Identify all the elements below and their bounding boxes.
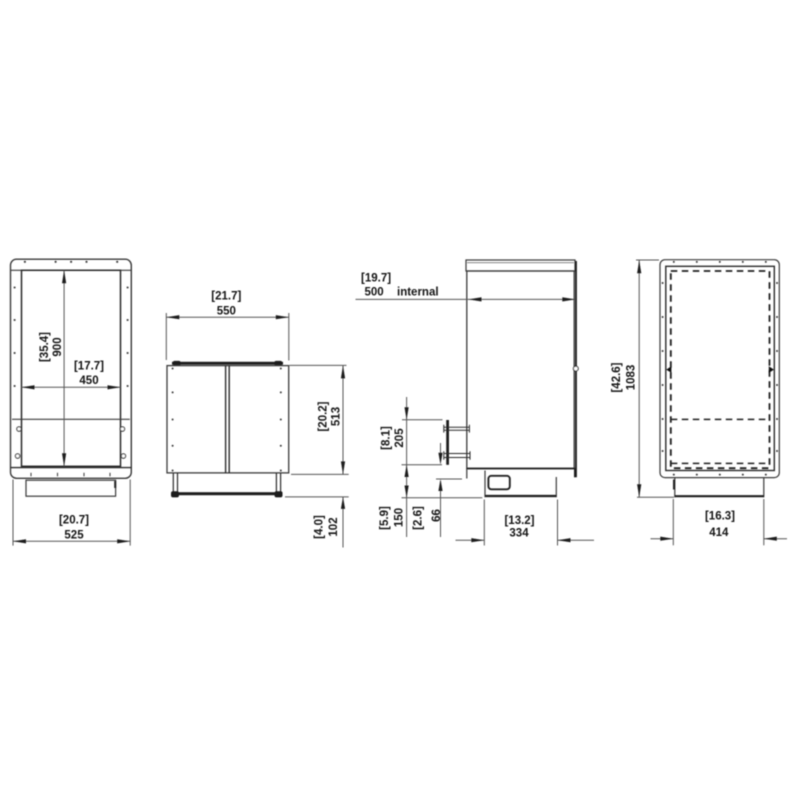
svg-text:[2.6]: [2.6] <box>412 506 424 530</box>
svg-text:[20.2]: [20.2] <box>318 401 330 431</box>
svg-text:900: 900 <box>52 337 64 356</box>
svg-text:66: 66 <box>431 509 443 522</box>
svg-text:[20.7]: [20.7] <box>59 515 89 527</box>
svg-text:[5.9]: [5.9] <box>379 506 391 530</box>
svg-text:[19.7]: [19.7] <box>361 273 391 285</box>
svg-text:450: 450 <box>79 375 98 387</box>
svg-text:334: 334 <box>509 528 529 540</box>
svg-text:205: 205 <box>394 428 406 448</box>
svg-text:150: 150 <box>393 508 405 527</box>
svg-text:[8.1]: [8.1] <box>381 426 393 450</box>
svg-text:513: 513 <box>331 407 343 426</box>
svg-text:[4.0]: [4.0] <box>314 515 326 539</box>
svg-text:internal: internal <box>397 287 439 299</box>
svg-text:[13.2]: [13.2] <box>504 515 534 527</box>
svg-text:525: 525 <box>64 530 84 542</box>
svg-text:[16.3]: [16.3] <box>705 511 735 523</box>
svg-text:[35.4]: [35.4] <box>39 332 51 362</box>
svg-text:102: 102 <box>328 517 340 536</box>
svg-text:[21.7]: [21.7] <box>211 291 241 303</box>
svg-text:500: 500 <box>365 287 384 299</box>
svg-text:[17.7]: [17.7] <box>74 361 104 373</box>
svg-text:1083: 1083 <box>626 365 638 391</box>
svg-text:550: 550 <box>217 306 236 318</box>
svg-text:414: 414 <box>709 527 729 539</box>
svg-text:[42.6]: [42.6] <box>611 362 623 392</box>
